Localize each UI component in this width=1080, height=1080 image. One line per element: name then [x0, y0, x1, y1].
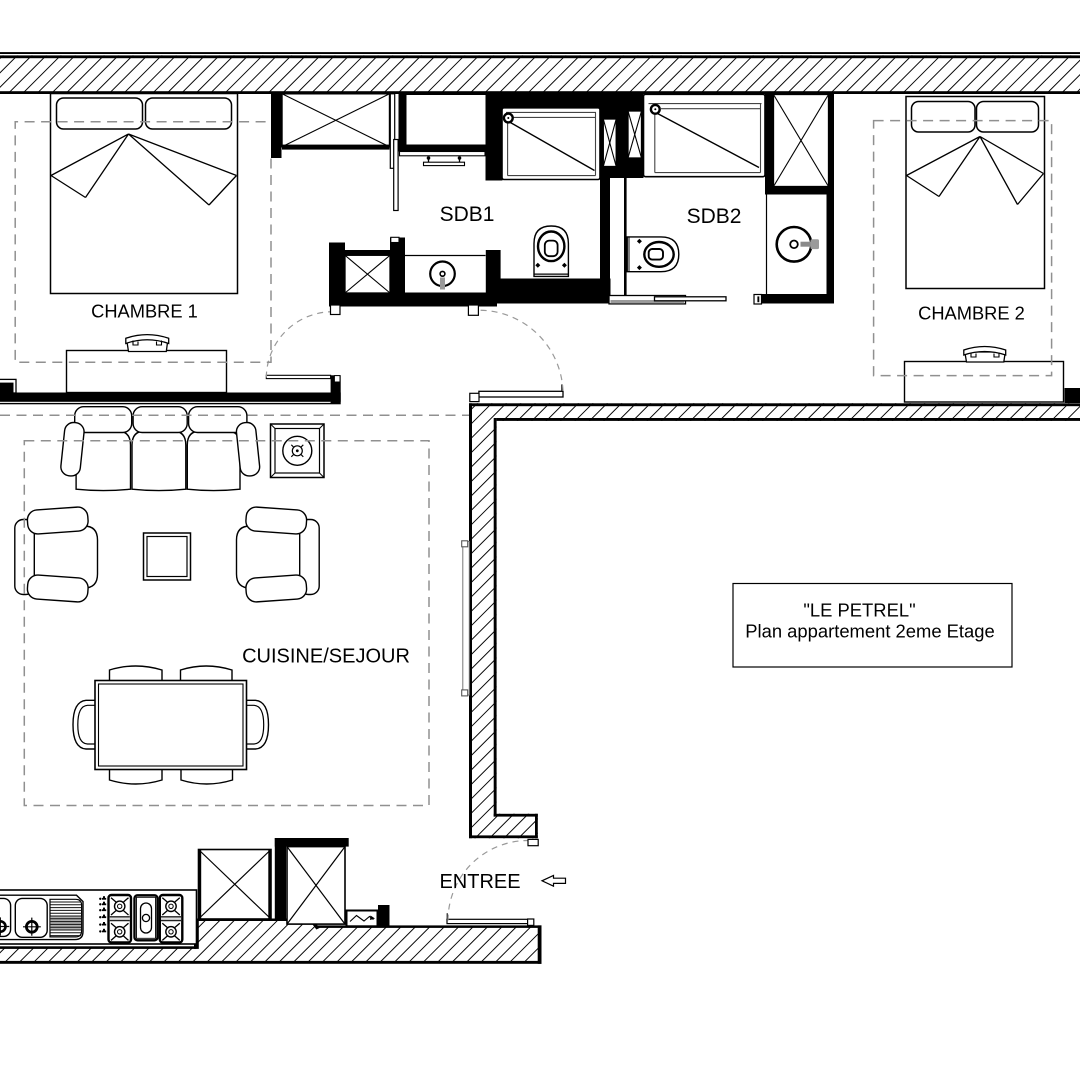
svg-text:"LE PETREL": "LE PETREL"	[803, 600, 915, 621]
svg-text:CHAMBRE 2: CHAMBRE 2	[918, 303, 1025, 324]
svg-text:SDB2: SDB2	[687, 205, 742, 228]
svg-text:Plan appartement 2eme Etage: Plan appartement 2eme Etage	[745, 621, 994, 642]
svg-text:CHAMBRE 1: CHAMBRE 1	[91, 301, 198, 322]
svg-text:CUISINE/SEJOUR: CUISINE/SEJOUR	[242, 646, 410, 668]
svg-text:SDB1: SDB1	[440, 203, 495, 226]
svg-text:ENTREE: ENTREE	[439, 871, 520, 893]
